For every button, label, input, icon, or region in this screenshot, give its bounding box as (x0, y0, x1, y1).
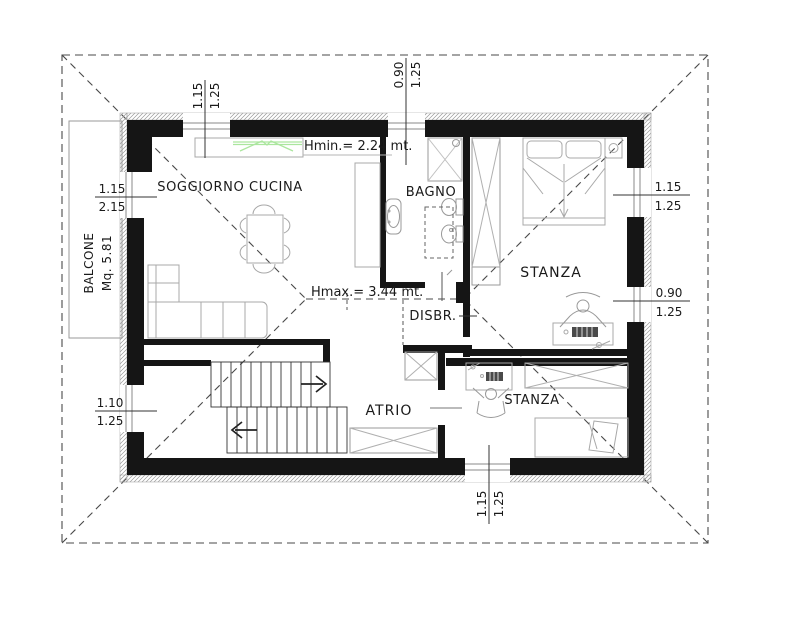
wall-bagno-right (463, 137, 470, 288)
sofa (148, 265, 267, 338)
single-bed (535, 418, 628, 457)
floor-plan-svg: SOGGIORNO CUCINA BAGNO STANZA DISBR. ATR… (0, 0, 800, 633)
chair-right-2 (284, 245, 290, 260)
dim-right-1-h: 1.25 (655, 199, 682, 213)
wall-exterior-bottom (127, 458, 644, 475)
wall-atrio-west (144, 360, 211, 366)
hmax-label: Hmax.= 3.44 mt. (311, 285, 423, 300)
cooktop-icon (233, 141, 302, 151)
dim-left-atrio-h: 1.25 (97, 414, 124, 428)
wall-stanza-sud-left-b (438, 425, 445, 458)
person-chair-nord (560, 293, 606, 328)
wall-disbr-right (463, 303, 470, 337)
window-right-stanza-1 (627, 168, 651, 217)
bidet (442, 225, 464, 243)
dining-set (240, 205, 290, 273)
room-label-atrio: ATRIO (366, 403, 413, 419)
kitchen-tall-unit (355, 163, 380, 267)
keyboard-icon (572, 327, 598, 337)
wall-stanza-nord-bottom (463, 349, 628, 356)
floor-plan-page: SOGGIORNO CUCINA BAGNO STANZA DISBR. ATR… (0, 0, 800, 633)
stanza-sud-furniture (466, 363, 628, 457)
room-label-bagno: BAGNO (406, 185, 457, 200)
chair-top (253, 205, 275, 214)
dim-balcony-door-h: 2.15 (99, 200, 126, 214)
room-label-soggiorno: SOGGIORNO CUCINA (157, 180, 303, 195)
chair-bottom (253, 264, 275, 273)
window-left-atrio (120, 385, 144, 432)
keyboard-icon-2 (486, 372, 503, 381)
dim-top-bagno-h: 1.25 (409, 62, 423, 89)
kitchen-counter (195, 138, 380, 267)
wall-bagno-left (380, 137, 386, 288)
dim-right-1-w: 1.15 (655, 180, 682, 194)
sink (386, 199, 401, 234)
dim-bottom-h: 1.25 (492, 491, 506, 518)
window-top-soggiorno (183, 113, 230, 137)
roof-hip-ne (464, 55, 708, 299)
window-right-stanza-2 (627, 287, 651, 322)
wall-soggiorno-bottom (144, 339, 330, 345)
bathroom-fixtures (386, 138, 463, 301)
wall-stanza-sud-left-a (438, 345, 445, 390)
desk-nord (553, 323, 613, 349)
chair-left-2 (240, 245, 246, 260)
room-label-stanza-nord: STANZA (520, 265, 582, 281)
nightstand (605, 138, 622, 158)
dim-balcony-door-w: 1.15 (99, 182, 126, 196)
room-label-stanza-sud: STANZA (504, 393, 559, 408)
balcone-area-label: Mq. 5.81 (100, 235, 114, 291)
wall-pilaster-nw (144, 137, 152, 172)
desk-sud (466, 363, 512, 390)
hatch-bottom (120, 475, 651, 482)
dim-bottom-w: 1.15 (475, 491, 489, 518)
dim-left-atrio-w: 1.10 (97, 396, 124, 410)
hmin-label: Hmin.= 2.24 mt. (304, 139, 412, 154)
bagno-door-swing (447, 270, 452, 275)
balcony-outline (69, 121, 122, 338)
stairs (211, 362, 347, 453)
room-label-balcone: BALCONE (82, 232, 96, 293)
bagno-dashed-zone (425, 207, 453, 258)
wardrobe-sud (525, 363, 628, 388)
double-bed (523, 138, 605, 225)
room-label-disbr: DISBR. (409, 309, 456, 324)
window-bottom-stanza (465, 458, 510, 482)
shower (428, 138, 462, 181)
stair-arrow-down (232, 422, 257, 438)
chair-left-1 (240, 218, 246, 233)
dim-top-bagno-w: 0.90 (392, 62, 406, 89)
dim-right-2-w: 0.90 (656, 286, 683, 300)
wardrobe-nord (472, 138, 500, 285)
toilet (442, 199, 464, 216)
dim-top-soggiorno-w: 1.15 (191, 83, 205, 110)
dim-right-2-h: 1.25 (656, 305, 683, 319)
wall-stair-jog (323, 345, 330, 362)
stair-arrow-up (301, 376, 326, 392)
stair-risers-upper (221, 362, 311, 407)
chair-right-1 (284, 218, 290, 233)
stanza-nord-furniture (472, 138, 622, 349)
dim-top-soggiorno-h: 1.25 (208, 83, 222, 110)
